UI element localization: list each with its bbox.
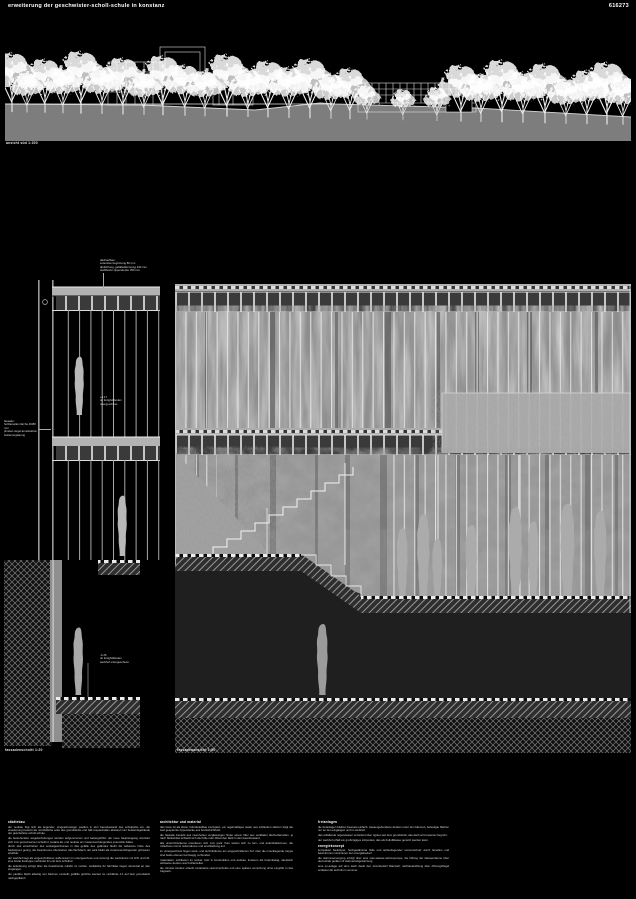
- annotation-level-upper: +4.17 ok fertigfußboden obergeschoss: [100, 396, 122, 406]
- facade-section-label: fassadenschnitt 1:20: [5, 748, 43, 752]
- column-heading: städtebau: [8, 820, 150, 824]
- site-elevation-drawing: [5, 40, 631, 141]
- annotation-roof-buildup: dachaufbau: extensive begrünung 80 mm ab…: [100, 259, 147, 273]
- annotation-facade-buildup: fassade: holzlamellen lärche 40/80 mm pf…: [4, 420, 38, 437]
- annotation-level-lower: -3.45 ok fertigfußboden werkhof unterges…: [100, 654, 129, 664]
- text-column-landscape-energy: freianlagen die freianlagen bleiben bewu…: [318, 820, 449, 874]
- facade-section-drawing: [0, 258, 170, 760]
- person-silhouette: [73, 628, 83, 695]
- ground-band: [5, 103, 631, 141]
- elevation-label: fassadenansicht 1:50: [177, 748, 215, 752]
- page-title: erweiterung der geschwister-scholl-schul…: [8, 3, 165, 9]
- facade-elevation-drawing: [175, 283, 631, 760]
- column-heading: architektur und material: [160, 820, 293, 824]
- project-description: städtebau der neubau fügt sich als liege…: [0, 820, 636, 899]
- text-column-urban: städtebau der neubau fügt sich als liege…: [8, 820, 150, 882]
- earth-hatch: [175, 718, 631, 753]
- site-elevation-label: ansicht süd 1:200: [6, 141, 38, 145]
- leader-line: [38, 429, 51, 430]
- earth-hatch: [4, 560, 52, 746]
- rib-band-roof: [175, 292, 631, 312]
- presentation-board: erweiterung der geschwister-scholl-schul…: [0, 0, 636, 899]
- competition-code: 616273: [609, 3, 629, 9]
- text-column-architecture: architektur und material das haus ist al…: [160, 820, 293, 875]
- concrete-wall-band: [442, 393, 631, 453]
- column-heading: freianlagen: [318, 820, 449, 824]
- leader-line: [103, 273, 104, 289]
